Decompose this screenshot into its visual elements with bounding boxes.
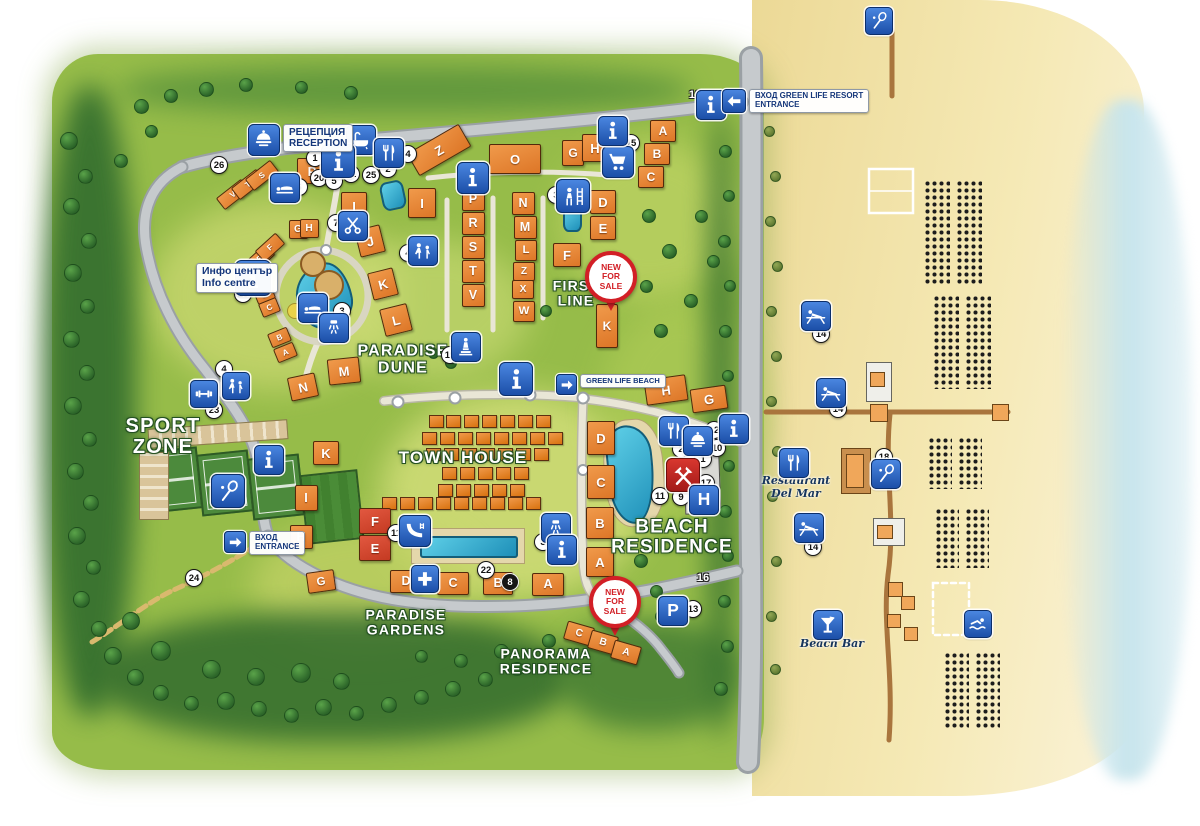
marker-16: 16 (695, 570, 711, 586)
tree (714, 682, 728, 696)
tree (153, 685, 169, 701)
tree (78, 169, 93, 184)
area-label-line: GARDENS (366, 622, 447, 637)
building-letter: N (297, 379, 309, 396)
building-letter: C (574, 627, 584, 640)
tree (295, 81, 308, 94)
info-icon (499, 362, 533, 396)
townhouse (476, 432, 491, 445)
sun-platform (901, 596, 915, 610)
dune-bush (764, 126, 775, 137)
building-letter: B (653, 147, 662, 161)
area-label-line: PARADISE (357, 343, 448, 360)
building-I: I (408, 188, 436, 218)
area-label-line: PANORAMA (500, 646, 592, 661)
building-A: A (650, 120, 676, 142)
townhouse (514, 467, 529, 480)
building-letter: P (469, 192, 477, 206)
building-letter: D (598, 195, 607, 210)
building-G: G (690, 385, 729, 414)
tree (642, 209, 656, 223)
building-letter: B (595, 516, 604, 531)
parking-icon: P (658, 596, 688, 626)
building-letter: D (596, 431, 605, 446)
pharmacy-cross-icon (411, 565, 439, 593)
building-letter: E (599, 221, 608, 236)
building-G: G (562, 140, 584, 166)
dune-bush (766, 396, 777, 407)
playground-icon (408, 236, 438, 266)
sun-platform (904, 627, 918, 641)
townhouse (510, 484, 525, 497)
townhouse (458, 432, 473, 445)
paradise-dune-label: PARADISEDUNE (357, 343, 448, 376)
building-letter: R (468, 216, 477, 230)
building-F: F (553, 243, 581, 267)
umbrella-grid-half (933, 295, 959, 389)
tree (478, 672, 493, 687)
info-centre-sign: Инфо центърInfo centre (196, 263, 278, 293)
tree (719, 145, 732, 158)
bell-icon (248, 124, 280, 156)
building-letter: X (520, 284, 527, 295)
tree (239, 78, 253, 92)
marker-24: 24 (185, 569, 203, 587)
umbrella-grid (924, 180, 982, 284)
building-K: K (313, 441, 339, 465)
sun-platform (887, 614, 901, 628)
sign-text-line: GREEN LIFE BEACH (586, 377, 660, 385)
building-letter: A (659, 124, 668, 138)
tree (540, 305, 552, 317)
tree (184, 696, 199, 711)
building-letter: I (420, 196, 424, 211)
townhouse (456, 484, 471, 497)
building-V: V (462, 284, 485, 307)
sign-text: GREEN LIFE BEACH (580, 374, 666, 388)
building-letter: C (265, 302, 274, 313)
area-label-line: RESIDENCE (611, 537, 733, 557)
townhouse (512, 432, 527, 445)
townhouse (438, 484, 453, 497)
building-D: D (587, 421, 615, 455)
townhouse (530, 432, 545, 445)
townhouse (440, 432, 455, 445)
tree (291, 663, 311, 683)
area-label-line: DUNE (357, 360, 448, 377)
townhouse (474, 484, 489, 497)
townhouse (436, 497, 451, 510)
sunbed-icon (816, 378, 846, 408)
building-E: E (359, 535, 391, 561)
townhouse (482, 415, 497, 428)
tennis-icon (211, 474, 245, 508)
building-G: G (306, 569, 337, 594)
tree (64, 397, 82, 415)
parking-row (139, 452, 169, 520)
building-letter: C (596, 475, 605, 490)
area-label-line: TOWN HOUSE (399, 449, 528, 467)
building-letter: I (304, 491, 308, 505)
hotel-icon: H (689, 485, 719, 515)
lap-pool (420, 536, 518, 558)
icon-letter: P (667, 602, 679, 619)
building-O: O (489, 144, 541, 174)
building-letter: H (305, 223, 312, 234)
building-letter: G (703, 391, 715, 407)
tree (67, 463, 84, 480)
building-letter: K (603, 319, 612, 333)
arrow-right-icon (556, 374, 577, 395)
building-letter: D (401, 574, 410, 588)
building-letter: W (519, 305, 530, 317)
sunbed-icon (794, 513, 824, 543)
info-icon (719, 414, 749, 444)
tree (344, 86, 358, 100)
building-letter: B (275, 332, 284, 343)
tree (719, 505, 732, 518)
tree (707, 255, 720, 268)
building-letter: M (338, 363, 350, 379)
area-label-line: BEACH (611, 517, 733, 537)
tree (415, 650, 428, 663)
townhouse (400, 497, 415, 510)
building-C: C (587, 465, 615, 499)
tree (86, 560, 101, 575)
beach-sport-icon (865, 7, 893, 35)
tree (284, 708, 299, 723)
beach-kiosk-inner (870, 372, 885, 387)
building-M: M (327, 356, 362, 385)
umbrella-grid (933, 295, 991, 389)
dune-bush (771, 556, 782, 567)
sign-text: ВХОД GREEN LIFE RESORTENTRANCE (749, 89, 869, 113)
tree (68, 527, 86, 545)
building-letter: C (647, 170, 656, 184)
beach-residence-label: BEACHRESIDENCE (611, 517, 733, 557)
resort-map: VTSPZOGHABCIPRSTVNMLZXWDEFKEFGHIJKLDCBAN… (0, 0, 1200, 826)
umbrella-grid-half (975, 652, 1000, 730)
sun-platform (992, 404, 1009, 421)
playground-icon (222, 372, 250, 400)
building-W: W (513, 301, 535, 322)
tree (114, 154, 128, 168)
tree (202, 660, 221, 679)
tree (64, 264, 82, 282)
tree (164, 89, 178, 103)
building-T: T (462, 260, 485, 283)
tree (63, 198, 80, 215)
townhouse (442, 467, 457, 480)
umbrella-grid (935, 508, 989, 568)
tree (122, 612, 140, 630)
info-icon (547, 535, 577, 565)
statue-icon (451, 332, 481, 362)
restaurant-icon (779, 448, 809, 478)
arrow-right-icon (224, 531, 246, 553)
townhouse (492, 484, 507, 497)
tree (251, 701, 267, 717)
tree (134, 99, 149, 114)
pin-text-line: SALE (600, 282, 623, 291)
townhouse (508, 497, 523, 510)
umbrella-grid-half (935, 508, 959, 568)
tree (718, 235, 731, 248)
marker-25: 25 (362, 166, 380, 184)
building-H: H (300, 219, 319, 238)
townhouse (429, 415, 444, 428)
area-label-line: ZONE (126, 437, 201, 458)
building-letter: A (543, 577, 552, 591)
fitness-icon (190, 380, 218, 408)
umbrella-grid-half (928, 437, 952, 489)
entrance-west-sign: ВХОДENTRANCE (224, 531, 305, 555)
dune-bush (765, 216, 776, 227)
tree (60, 132, 78, 150)
sign-text-line: Info centre (202, 278, 272, 290)
umbrella-grid-half (956, 180, 982, 284)
tree (104, 647, 122, 665)
sun-platform (870, 404, 888, 422)
sign-text: Инфо центърInfo centre (196, 263, 278, 293)
tree (640, 280, 653, 293)
sign-text: РЕЦЕПЦИЯRECEPTION (283, 124, 353, 152)
waterslide-icon (399, 515, 431, 547)
sign-text-line: РЕЦЕПЦИЯ (289, 127, 347, 138)
pin-text-line: SALE (604, 607, 627, 616)
beach-tennis-icon (871, 459, 901, 489)
tree (721, 640, 734, 653)
building-letter: E (371, 541, 380, 556)
tree (718, 595, 731, 608)
umbrella-grid-half (965, 508, 989, 568)
building-letter: A (281, 347, 290, 358)
tree (333, 673, 350, 690)
building-L: L (515, 240, 537, 261)
info-icon (254, 445, 284, 475)
tree (695, 210, 708, 223)
building-letter: G (568, 146, 577, 160)
shower-icon (319, 313, 349, 343)
green-life-beach-sign: GREEN LIFE BEACH (556, 374, 666, 395)
tree (91, 621, 107, 637)
townhouse (446, 415, 461, 428)
beach-bar-icon (813, 610, 843, 640)
tree (724, 280, 736, 292)
umbrella-grid-half (924, 180, 950, 284)
marker-22: 22 (477, 561, 495, 579)
area-label-line: PARADISE (366, 607, 447, 622)
building-E: E (590, 216, 616, 240)
town-house-label: TOWN HOUSE (399, 449, 528, 467)
sign-text-line: ENTRANCE (255, 543, 299, 552)
building-A: A (586, 547, 614, 577)
info-icon (598, 116, 628, 146)
tree (349, 706, 364, 721)
del-mar-terrace (846, 454, 864, 488)
tree (145, 125, 158, 138)
building-D: D (590, 190, 616, 214)
building-C: C (638, 166, 664, 188)
building-M: M (514, 216, 537, 239)
building-letter: L (523, 244, 530, 256)
building-R: R (462, 212, 485, 235)
tree (80, 299, 95, 314)
tree (83, 495, 99, 511)
entrance-north-sign: ВХОД GREEN LIFE RESORTENTRANCE (722, 89, 869, 113)
dune-bush (770, 664, 781, 675)
sport-zone-label: SPORTZONE (126, 416, 201, 458)
tree (454, 654, 468, 668)
tree (445, 681, 461, 697)
building-B: B (586, 507, 614, 539)
sign-text-line: Инфо център (202, 266, 272, 278)
tree (73, 591, 90, 608)
townhouse (464, 415, 479, 428)
townhouse (500, 415, 515, 428)
panorama-residence-label: PANORAMARESIDENCE (500, 646, 592, 675)
building-S: S (462, 236, 485, 259)
pin-bubble: NEWFORSALE (585, 251, 637, 303)
tree (217, 692, 235, 710)
building-letter: S (257, 170, 267, 180)
area-label-line: SPORT (126, 416, 201, 437)
building-letter: O (510, 152, 520, 167)
building-letter: K (321, 446, 330, 461)
pool-lifeguard-icon (556, 179, 590, 213)
restaurant-icon (374, 138, 404, 168)
sign-text: ВХОДENTRANCE (249, 531, 305, 555)
building-letter: M (520, 220, 531, 234)
building-letter: T (469, 264, 477, 278)
building-letter: F (265, 242, 275, 252)
tree (82, 432, 97, 447)
paradise-gardens-label: PARADISEGARDENS (366, 607, 447, 636)
building-F: F (359, 508, 391, 534)
townhouse (494, 432, 509, 445)
umbrella-grid-half (944, 652, 969, 730)
dune-bush (770, 171, 781, 182)
tree (723, 190, 735, 202)
townhouse (460, 467, 475, 480)
townhouse (526, 497, 541, 510)
townhouse (490, 497, 505, 510)
icon-letter: H (698, 491, 711, 508)
building-Z: Z (513, 262, 535, 281)
script-label-line: Del Mar (762, 488, 831, 501)
dune-bush (771, 351, 782, 362)
building-letter: K (377, 276, 390, 293)
tree (81, 233, 97, 249)
umbrella-grid-half (965, 295, 991, 389)
spa-icon (270, 173, 300, 203)
marker-11: 11 (651, 487, 669, 505)
umbrella-grid-half (958, 437, 982, 489)
reception-sign: РЕЦЕПЦИЯRECEPTION (248, 124, 353, 156)
umbrella-grid (944, 652, 1000, 730)
building-letter: G (316, 574, 326, 587)
townhouse (454, 497, 469, 510)
townhouse (536, 415, 551, 428)
building-letter: F (371, 514, 379, 529)
sunbed-icon (801, 301, 831, 331)
townhouse (422, 432, 437, 445)
marker-26: 26 (210, 156, 228, 174)
tree (723, 460, 735, 472)
building-C: C (437, 572, 469, 595)
townhouse (472, 497, 487, 510)
building-A: A (532, 573, 564, 596)
dune-bush (772, 261, 783, 272)
building-X: X (512, 280, 534, 299)
area-label-line: RESIDENCE (500, 661, 592, 676)
building-letter: L (390, 312, 401, 328)
tree (381, 697, 397, 713)
dune-bush (766, 306, 777, 317)
restaurant-del-mar-label: RestaurantDel Mar (762, 475, 831, 500)
building-letter: F (563, 248, 571, 263)
townhouse (548, 432, 563, 445)
building-letter: C (448, 576, 457, 590)
minimarket-icon (602, 146, 634, 178)
tree (315, 699, 332, 716)
building-I: I (295, 485, 318, 511)
swimmer-icon (964, 610, 992, 638)
dune-bush (766, 611, 777, 622)
marker-8: 8 (501, 573, 519, 591)
building-letter: Z (432, 142, 446, 159)
sign-text-line: ENTRANCE (755, 101, 863, 110)
tree (63, 331, 80, 348)
building-letter: A (595, 555, 604, 570)
sign-text-line: RECEPTION (289, 138, 347, 149)
tree (151, 641, 171, 661)
tree (247, 668, 265, 686)
building-letter: S (469, 240, 477, 254)
building-letter: Z (521, 266, 527, 277)
building-N: N (512, 192, 535, 215)
tree (79, 365, 95, 381)
reception-dome-icon (683, 426, 713, 456)
tree (199, 82, 214, 97)
tree (719, 325, 732, 338)
building-letter: N (518, 196, 527, 210)
tree (127, 669, 144, 686)
tree (654, 324, 668, 338)
tree (684, 294, 698, 308)
building-letter: V (469, 288, 477, 302)
townhouse (478, 467, 493, 480)
pin-bubble: NEWFORSALE (589, 576, 641, 628)
townhouse (496, 467, 511, 480)
hairdresser-icon (338, 211, 368, 241)
beach-structure-inner (877, 525, 893, 539)
townhouse (418, 497, 433, 510)
building-B: B (644, 143, 670, 165)
umbrella-grid (928, 437, 982, 489)
building-letter: A (621, 646, 631, 659)
arrow-left-icon (722, 89, 746, 113)
townhouse (534, 448, 549, 461)
tree (414, 690, 429, 705)
tree (722, 370, 734, 382)
townhouse (518, 415, 533, 428)
tree (662, 244, 677, 259)
sun-platform (888, 582, 903, 597)
info-icon (457, 162, 489, 194)
